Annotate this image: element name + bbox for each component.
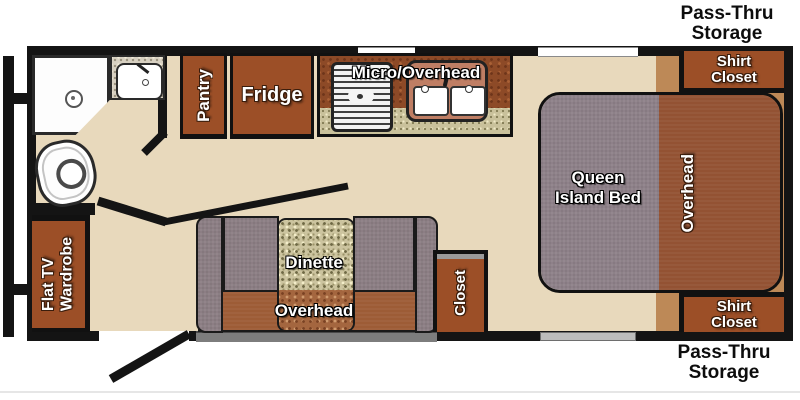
image-bottom-divider [0, 391, 800, 393]
pass-thru-top-line1: Pass-Thru [662, 4, 792, 24]
pass-thru-bottom-line2: Storage [652, 363, 796, 383]
entry-door-swing-icon [111, 334, 189, 379]
pass-thru-storage-top-label: Pass-Thru Storage [662, 4, 792, 44]
bathroom-door-swing-icon [98, 201, 166, 222]
pass-thru-storage-bottom-label: Pass-Thru Storage [652, 343, 796, 383]
bathroom-doorjamb-line [144, 132, 165, 153]
floorplan-canvas: Pantry Fridge Micro/Overhead Queen Islan… [0, 0, 800, 400]
door-swing-lines [0, 0, 800, 400]
angled-partition-line [164, 186, 348, 222]
pass-thru-bottom-line1: Pass-Thru [652, 343, 796, 363]
pass-thru-top-line2: Storage [662, 24, 792, 44]
